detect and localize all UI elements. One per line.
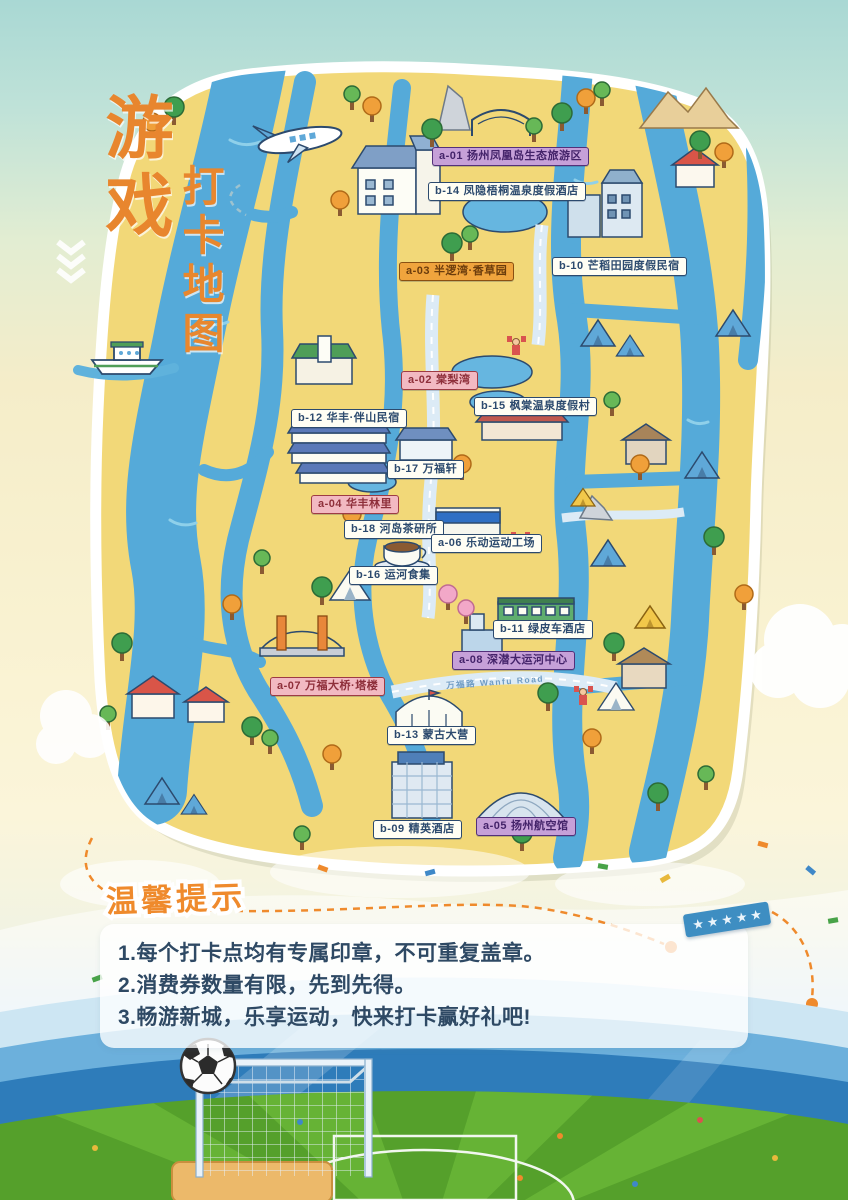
b09-hotel [392,752,452,818]
poi-code: b-13 [394,729,419,741]
poi-name: 凤隐梧桐温泉度假酒店 [464,185,579,197]
tip-item-3: 3.畅游新城，乐享运动，快来打卡赢好礼吧! [118,1002,730,1034]
map-label-b-11: b-11绿皮车酒店 [493,620,593,639]
star-icon: ★ [691,917,705,932]
a06-sport-store [436,508,500,536]
poi-code: b-10 [559,260,584,272]
poi-name: 芒稻田园度假民宿 [588,260,680,272]
tips-card: 1.每个打卡点均有专属印章，不可重复盖章。 2.消费券数量有限，先到先得。 3.… [100,924,748,1048]
poi-code: b-15 [481,400,506,412]
tip-item-1: 1.每个打卡点均有专属印章，不可重复盖章。 [118,938,730,970]
poi-name: 运河食集 [385,569,431,581]
map-label-b-09: b-09精英酒店 [373,820,462,839]
map-label-b-15: b-15枫棠温泉度假村 [474,397,597,416]
map-label-b-12: b-12华丰·伴山民宿 [291,409,407,428]
poi-code: a-04 [318,498,342,510]
poi-name: 精英酒店 [409,823,455,835]
poi-code: b-16 [356,569,381,581]
map-label-a-04: a-04华丰林里 [311,495,399,514]
poi-code: a-06 [438,537,462,549]
star-icon: ★ [720,912,734,927]
poi-name: 扬州凤凰岛生态旅游区 [467,150,582,162]
poi-code: b-12 [298,412,323,424]
map-label-b-13: b-13蒙古大营 [387,726,476,745]
poi-name: 乐动运动工场 [466,537,535,549]
poi-code: a-03 [406,265,430,277]
poi-name: 绿皮车酒店 [528,623,586,635]
map-label-a-08: a-08深潜大运河中心 [452,651,575,670]
poster-title-sub: 打卡地图 [170,164,231,360]
star-icon: ★ [706,914,720,929]
map-label-a-03: a-03半逻湾·香草园 [399,262,514,281]
map-label-a-06: a-06乐动运动工场 [431,534,542,553]
poi-name: 华丰林里 [346,498,392,510]
poi-code: a-02 [408,374,432,386]
map-label-a-01: a-01扬州凤凰岛生态旅游区 [432,147,589,166]
b14-hotel [352,136,440,214]
poi-name: 蒙古大营 [423,729,469,741]
map-label-a-07: a-07万福大桥·塔楼 [270,677,385,696]
poi-code: b-14 [435,185,460,197]
map-label-b-16: b-16运河食集 [349,566,438,585]
poi-code: a-08 [459,654,483,666]
map-label-b-10: b-10芒稻田园度假民宿 [552,257,687,276]
poi-name: 万福大桥·塔楼 [305,680,378,692]
poi-code: b-18 [351,523,376,535]
map-label-a-02: a-02棠梨湾 [401,371,478,390]
poi-name: 万福轩 [423,463,458,475]
map-label-b-14: b-14凤隐梧桐温泉度假酒店 [428,182,586,201]
poi-name: 深潜大运河中心 [487,654,568,666]
b11-train-hotel [498,598,574,622]
poi-name: 扬州航空馆 [511,820,569,832]
tips-title: 温馨提示 [105,872,246,922]
map-label-b-17: b-17万福轩 [387,460,464,479]
poster: 游戏 打卡地图 a-01扬州凤凰岛生态旅游区 b-14凤隐梧桐温泉度假酒店 a-… [0,0,848,1200]
poi-name: 枫棠温泉度假村 [510,400,591,412]
poi-code: a-07 [277,680,301,692]
poi-name: 棠梨湾 [436,374,471,386]
b17-building [396,428,456,460]
poi-code: b-11 [500,623,524,635]
b12-rows [288,423,390,483]
poi-name: 河岛茶研所 [380,523,438,535]
star-icon: ★ [735,910,749,925]
poi-name: 半逻湾·香草园 [434,265,507,277]
poi-name: 华丰·伴山民宿 [327,412,400,424]
poi-code: a-05 [483,820,507,832]
star-icon: ★ [749,908,763,923]
poi-code: b-17 [394,463,419,475]
poster-title-main: 游戏 [84,92,183,248]
chevron-marks [58,242,84,280]
tip-item-2: 2.消费券数量有限，先到先得。 [118,970,730,1002]
map-label-b-18: b-18河岛茶研所 [344,520,444,539]
poi-code: b-09 [380,823,405,835]
map-label-a-05: a-05扬州航空馆 [476,817,576,836]
poi-code: a-01 [439,150,463,162]
